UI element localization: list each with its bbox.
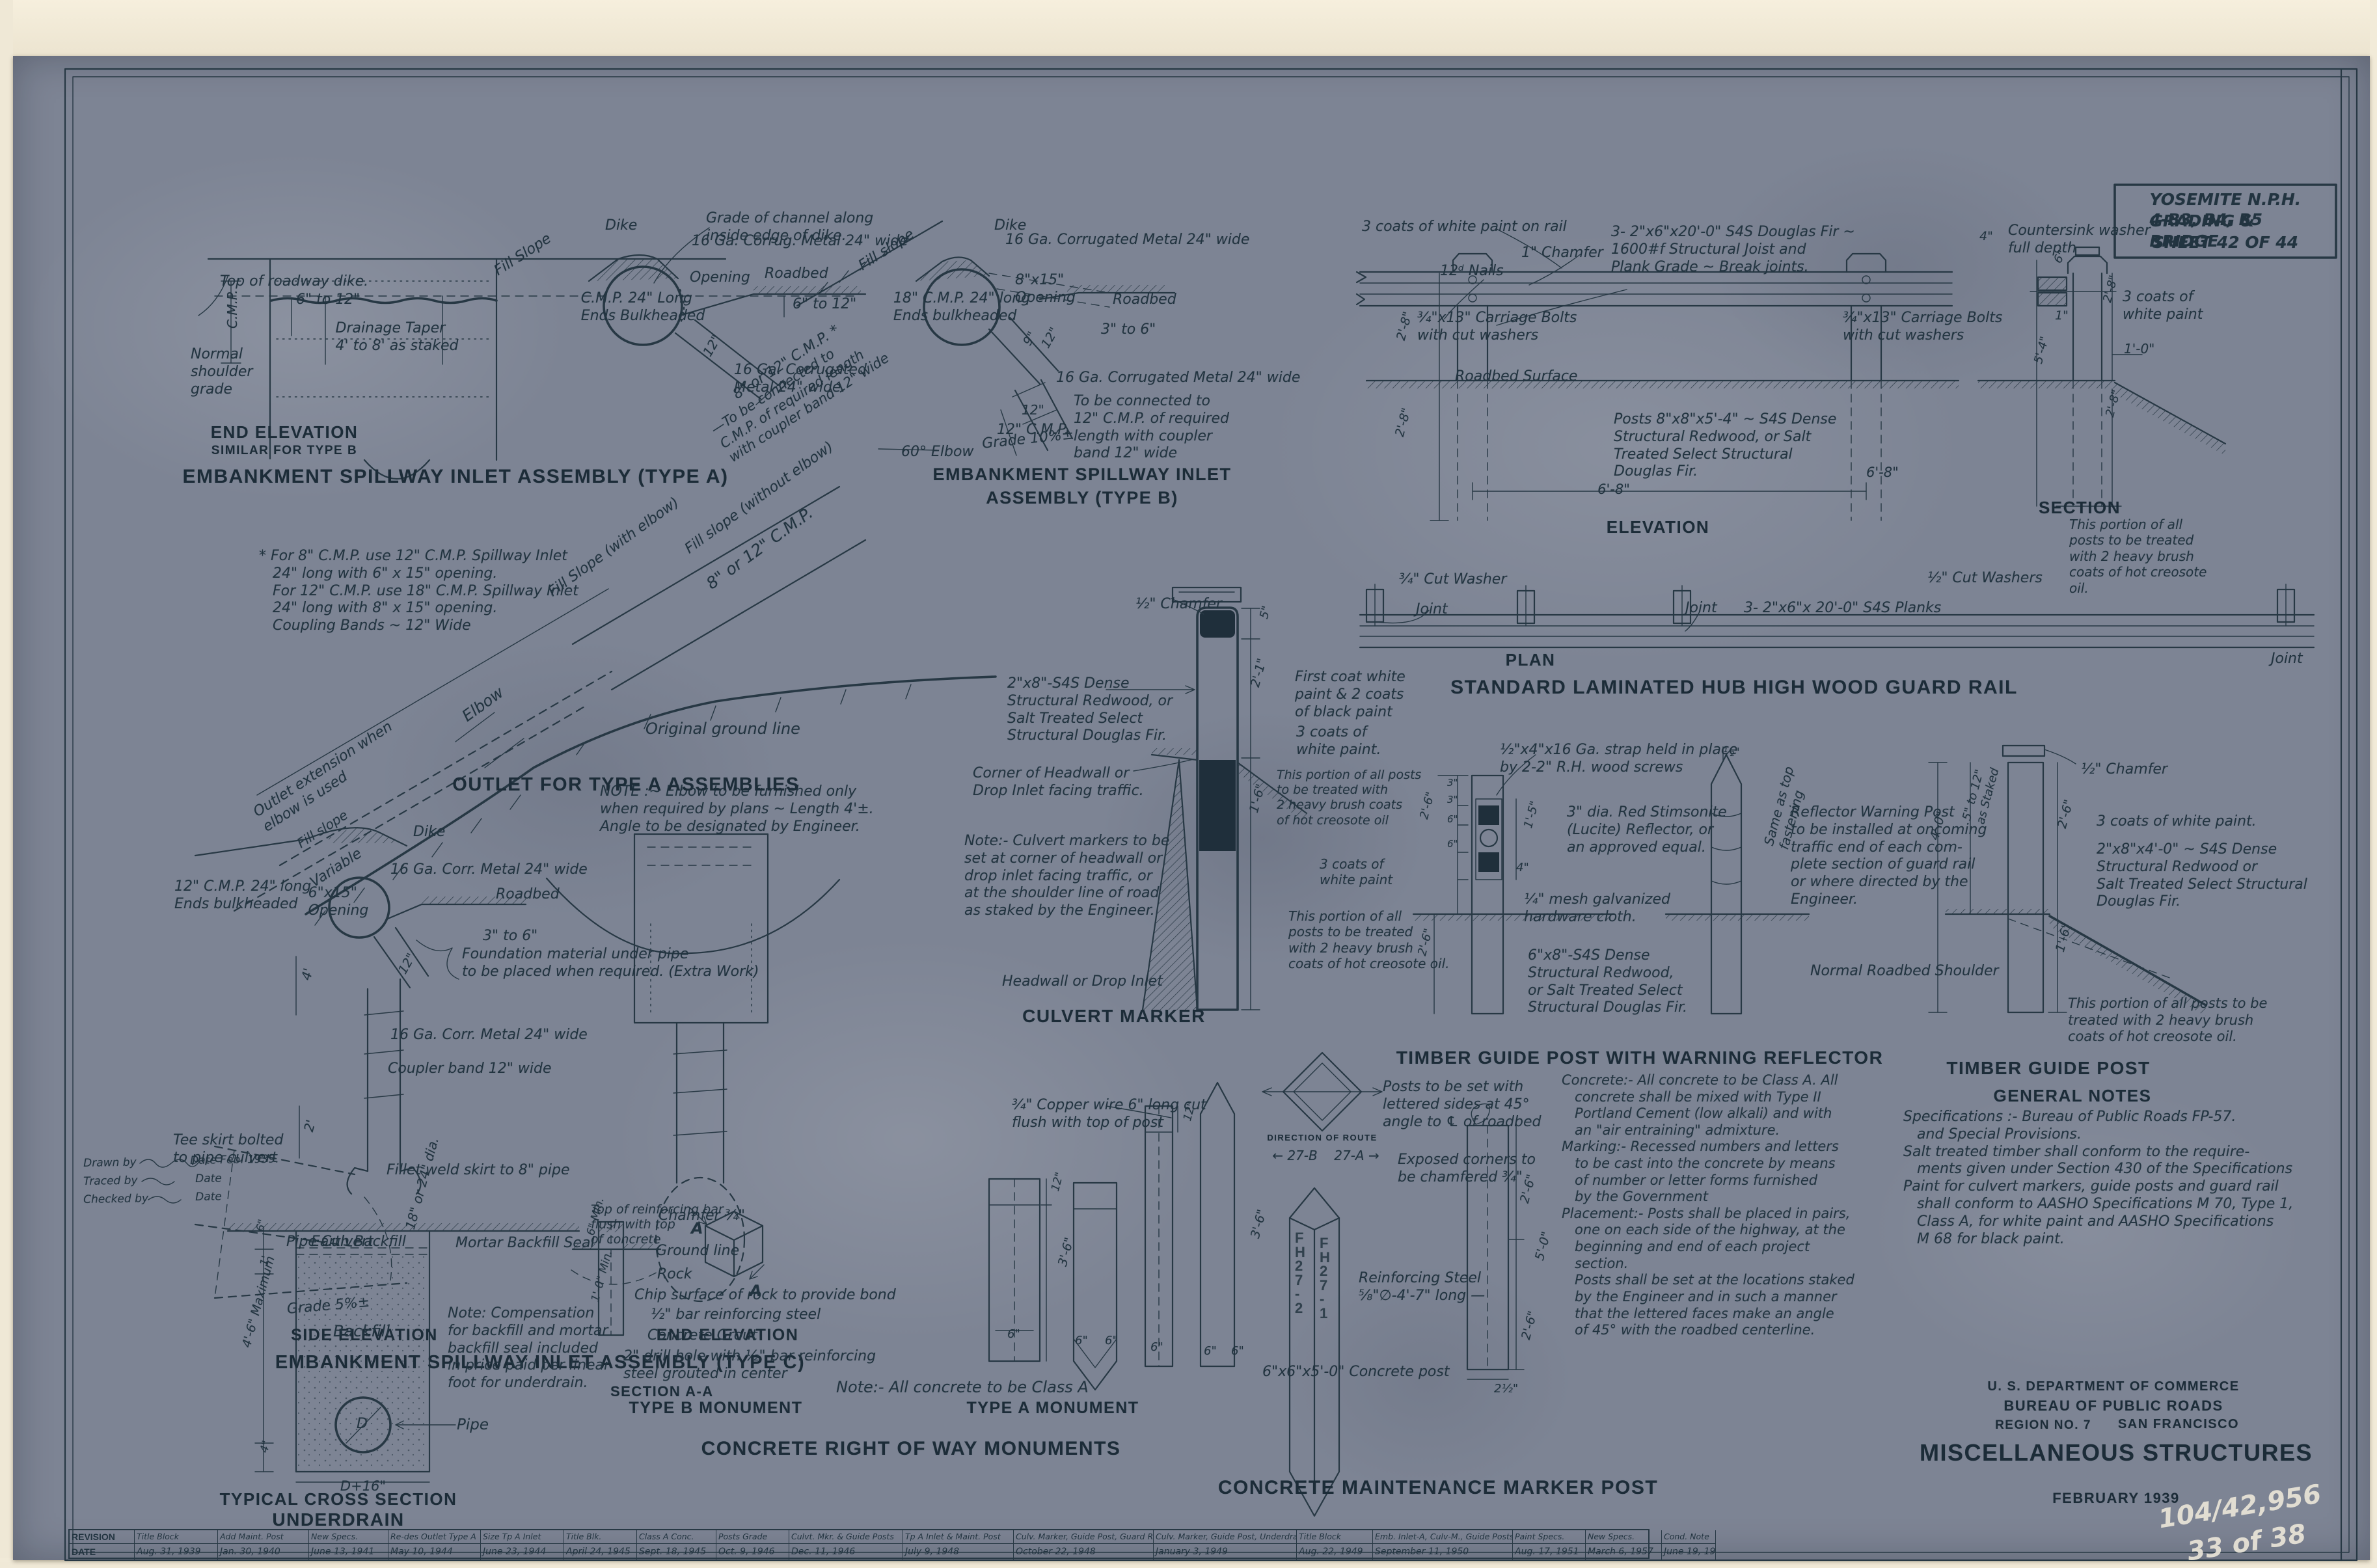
credits-label-0: Drawn by — [83, 1156, 137, 1170]
maint-marker-label-2: 3'-6" — [1248, 1208, 1270, 1240]
spillway-type-a-label-17: END ELEVATION — [211, 423, 359, 442]
date-entry-7: Oct. 9, 1946 — [716, 1544, 789, 1560]
general-notes-label-0: GENERAL NOTES — [1994, 1087, 2152, 1106]
guard-rail-label-11: 6'-8" — [1866, 465, 1899, 481]
row-monuments-label-20: TYPE A MONUMENT — [966, 1399, 1139, 1418]
date-entry-8: Dec. 11, 1946 — [789, 1544, 903, 1560]
guide-post-reflector-label-2: 3" — [1447, 794, 1458, 805]
date-entry-12: Aug. 22, 1949 — [1297, 1544, 1373, 1560]
guide-post-label-2: 2"x8"x4'-0" ~ S4S Dense Structural Redwo… — [2097, 841, 2307, 911]
spillway-type-b-label-8: 12" — [1039, 325, 1063, 351]
revision-entry-6: Class A Conc. — [637, 1530, 716, 1544]
maint-marker-label-20: CONCRETE MAINTENANCE MARKER POST — [1218, 1477, 1658, 1500]
row-monuments-label-19: TYPE B MONUMENT — [629, 1399, 803, 1418]
spillway-type-c-label-13: Fillet weld skirt to 8" pipe — [387, 1162, 570, 1180]
date-entry-11: January 3, 1949 — [1154, 1544, 1297, 1560]
culvert-marker-label-3: 3 coats of white paint. — [1296, 724, 1381, 759]
spillway-type-c-label-5: Roadbed — [496, 886, 560, 904]
outlet-type-a-label-5: Original ground line — [645, 720, 800, 738]
culvert-marker-label-1: 2"x8"-S4S Dense Structural Redwood, or S… — [1007, 675, 1173, 745]
underdrain-label-9: 4" — [258, 1439, 274, 1454]
revision-entry-1: Add Maint. Post — [218, 1530, 309, 1544]
row-monuments-label-17: 6" — [1075, 1334, 1088, 1348]
guard-rail-label-28: ½" Cut Washers — [1927, 570, 2043, 588]
culvert-marker-label-4: 5" — [1257, 604, 1274, 621]
date-entry-2: June 13, 1941 — [309, 1544, 388, 1560]
guard-rail-label-8: 2'-8" — [1392, 407, 1415, 439]
guide-post-label-7: This portion of all posts to be treated … — [2068, 995, 2267, 1046]
spillway-type-a-label-16: 12" — [700, 332, 724, 359]
guard-rail-label-17: 2'-8" — [2100, 274, 2121, 304]
spillway-type-c-label-4: 6"x15" Opening — [308, 885, 369, 920]
revision-entry-7: Posts Grade — [716, 1530, 789, 1544]
maint-marker-label-7: ← 27-B — [1272, 1148, 1318, 1163]
credits-label-3: Date — [195, 1172, 222, 1185]
spillway-type-c-label-15: 18" or 24" dia. — [402, 1135, 442, 1231]
date-entry-15: March 6, 1957 — [1586, 1544, 1662, 1560]
maint-marker-label-4: 6" — [1204, 1344, 1217, 1358]
spillway-type-a-label-5: Roadbed — [765, 265, 828, 283]
spillway-type-b-label-13: Grade 10%± — [981, 426, 1074, 453]
spillway-type-c-label-11: 2' — [301, 1118, 319, 1133]
guard-rail-label-3: 3- 2"x6"x20'-0" S4S Douglas Fir ~ 1600#f… — [1611, 224, 1855, 276]
spillway-type-b-label-6: 3" to 6" — [1101, 321, 1156, 339]
underdrain-label-7: Pipe — [457, 1416, 489, 1434]
maint-marker-label-14: 5'-0" — [1532, 1230, 1555, 1262]
maint-marker-label-0: ¾" Copper wire 6" long cut flush with to… — [1012, 1097, 1206, 1132]
general-notes-label-1: Specifications :- Bureau of Public Roads… — [1903, 1109, 2293, 1249]
maint-marker-label-19: Concrete:- All concrete to be Class A. A… — [1562, 1072, 1854, 1339]
maint-marker-label-15: 2'-6" — [1519, 1310, 1541, 1342]
culvert-marker-label-13: CULVERT MARKER — [1022, 1006, 1206, 1027]
row-monuments-label-8: Concrete Grout — [647, 1327, 757, 1345]
annotation-layer: YOSEMITE N.P.H. 4-B3, B4, B5GRADING & BR… — [0, 0, 2377, 1562]
guard-rail-label-7: Roadbed Surface — [1455, 368, 1577, 386]
date-entry-5: April 24, 1945 — [564, 1544, 637, 1560]
date-entry-0: Aug. 31, 1939 — [135, 1544, 218, 1560]
underdrain-label-12: UNDERDRAIN — [272, 1509, 404, 1530]
guide-post-label-0: ½" Chamfer — [2081, 761, 2167, 779]
revision-entry-13: Emb. Inlet-A, Culv-M., Guide Posts — [1373, 1530, 1513, 1544]
revision-header: REVISION — [70, 1530, 135, 1544]
underdrain-label-2: 4'-6" Maximum — [239, 1254, 278, 1349]
guard-rail-label-24: ¾" Cut Washer — [1399, 571, 1506, 589]
guard-rail-label-25: Joint — [1416, 601, 1448, 619]
spillway-type-a-label-19: EMBANKMENT SPILLWAY INLET ASSEMBLY (TYPE… — [182, 466, 728, 489]
guide-post-reflector-label-8: 4" — [1516, 861, 1529, 875]
spillway-type-a-label-2: Dike — [605, 217, 637, 235]
guard-rail-label-4: ¾"x13" Carriage Bolts with cut washers — [1417, 310, 1577, 345]
spillway-type-b-label-16: ASSEMBLY (TYPE B) — [986, 488, 1178, 508]
spillway-type-a-label-0: Top of roadway dike. — [220, 273, 368, 291]
date-entry-3: May 10, 1944 — [388, 1544, 481, 1560]
title-block-label-1: BUREAU OF PUBLIC ROADS — [2003, 1398, 2223, 1414]
revision-entry-16: Cond. Note — [1662, 1530, 1716, 1544]
date-entry-4: June 23, 1944 — [481, 1544, 564, 1560]
spillway-type-a-label-12: C.M.P. — [224, 290, 240, 329]
maint-marker-label-9: Posts to be set with lettered sides at 4… — [1383, 1079, 1541, 1131]
guide-post-reflector-label-9: 3" dia. Red Stimsonite (Lucite) Reflecto… — [1567, 804, 1727, 856]
spillway-type-b-label-9: 16 Ga. Corrugated Metal 24" wide — [1056, 370, 1300, 387]
date-entry-13: September 11, 1950 — [1373, 1544, 1513, 1560]
row-monuments-label-13: Note:- All concrete to be Class A — [836, 1378, 1089, 1397]
row-monuments-label-15: 3'-6" — [1055, 1236, 1078, 1268]
maint-marker-label-5: 6" — [1231, 1344, 1244, 1358]
guide-post-reflector-label-1: 3" — [1447, 777, 1458, 789]
guard-rail-label-18: 3 coats of white paint — [2123, 289, 2203, 324]
guide-post-label-8: TIMBER GUIDE POST — [1946, 1058, 2150, 1079]
credits-label-2: Traced by — [83, 1174, 138, 1189]
guard-rail-label-14: 4" — [1979, 229, 1993, 244]
date-entry-14: Aug. 17, 1951 — [1513, 1544, 1586, 1560]
revision-entry-3: Re-des Outlet Type A — [388, 1530, 481, 1544]
guard-rail-label-19: 1'-0" — [2124, 341, 2154, 357]
maint-marker-label-6: DIRECTION OF ROUTE — [1267, 1133, 1377, 1143]
maint-marker-label-8: 27-A → — [1334, 1148, 1379, 1163]
guard-rail-label-6: 2'-8" — [1394, 310, 1416, 342]
row-monuments-label-14: 12" — [1049, 1171, 1067, 1193]
title-block-label-4: MISCELLANEOUS STRUCTURES — [1920, 1439, 2313, 1466]
culvert-marker-label-8: This portion of all posts to be treated … — [1277, 768, 1421, 828]
row-monuments-label-3: Ground line — [656, 1243, 739, 1260]
corner-box-label-2: SHEET 42 OF 44 — [2153, 233, 2298, 253]
guide-post-reflector-label-0: ½"x4"x16 Ga. strap held in place by 2-2"… — [1500, 742, 1737, 777]
maint-marker-label-18: F H 2 7 - 1 — [1320, 1236, 1330, 1320]
guard-rail-label-13: Countersink washer full depth — [2008, 223, 2151, 258]
guard-rail-label-16: 1" — [2055, 308, 2069, 323]
maint-marker-label-16: 2½" — [1494, 1382, 1518, 1396]
maint-marker-label-3: 6" — [1150, 1340, 1163, 1355]
spillway-type-b-label-1: 16 Ga. Corrugated Metal 24" wide — [1005, 232, 1249, 249]
guide-post-reflector-label-11: 6"x8"-S4S Dense Structural Redwood, or S… — [1528, 947, 1687, 1017]
guide-post-reflector-label-4: 6" — [1447, 838, 1458, 850]
row-monuments-label-18: 6" — [1105, 1334, 1118, 1348]
guide-post-reflector-label-10: ¼" mesh galvanized hardware cloth. — [1524, 891, 1670, 926]
culvert-marker-label-12: Headwall or Drop Inlet — [1002, 973, 1163, 991]
row-monuments-label-12: A — [750, 1282, 762, 1301]
spillway-type-b-label-7: 9" — [1020, 329, 1040, 349]
revision-entry-15: New Specs. — [1586, 1530, 1662, 1544]
revision-entry-5: Title Blk. — [564, 1530, 637, 1544]
revision-entry-9: Tp A Inlet & Maint. Post — [903, 1530, 1014, 1544]
guard-rail-label-21: 2'-8" — [2103, 388, 2124, 419]
culvert-marker-label-6: 1'-6" — [1247, 783, 1269, 815]
spillway-type-b-label-11: 12" — [1022, 402, 1044, 418]
guide-post-label-6: 1'-6" — [2053, 922, 2075, 954]
guard-rail-label-31: STANDARD LAMINATED HUB HIGH WOOD GUARD R… — [1450, 677, 2018, 699]
title-block-label-2: REGION NO. 7 — [1995, 1418, 2091, 1433]
guide-post-reflector-label-12: ½" — [1723, 746, 1740, 760]
revision-entry-10: Culv. Marker, Guide Post, Guard Rail — [1014, 1530, 1154, 1544]
maint-marker-label-17: F H 2 7 - 2 — [1295, 1231, 1305, 1315]
date-entry-1: Jan. 30, 1940 — [218, 1544, 309, 1560]
underdrain-label-5: Backfill — [333, 1322, 390, 1341]
guard-rail-label-0: 3 coats of white paint on rail — [1362, 219, 1567, 236]
outlet-type-a-label-4: Elbow — [459, 683, 508, 726]
underdrain-label-0: 6" — [254, 1218, 270, 1233]
revision-row: REVISIONTitle BlockAdd Maint. PostNew Sp… — [70, 1530, 1716, 1544]
title-block-label-0: U. S. DEPARTMENT OF COMMERCE — [1987, 1379, 2239, 1394]
guide-post-reflector-label-14: Reflector Warning Post to be installed a… — [1791, 804, 1987, 909]
guide-post-label-5: 2'-6" — [2055, 798, 2077, 830]
guide-post-reflector-label-16: TIMBER GUIDE POST WITH WARNING REFLECTOR — [1396, 1048, 1884, 1068]
culvert-marker-label-7: Corner of Headwall or Drop Inlet facing … — [973, 765, 1144, 800]
guard-rail-label-1: 1" Chamfer — [1521, 245, 1603, 262]
row-monuments-label-5: Chip surface of rock to provide bond — [634, 1287, 896, 1304]
credits-label-4: Checked by — [83, 1192, 148, 1206]
spillway-type-c-label-9: 16 Ga. Corr. Metal 24" wide — [390, 1027, 588, 1044]
row-monuments-label-21: CONCRETE RIGHT OF WAY MONUMENTS — [701, 1438, 1121, 1461]
credits-label-1: Date Feb. 1939. — [190, 1153, 279, 1168]
spillway-type-c-label-2: 16 Ga. Corr. Metal 24" wide — [390, 861, 588, 879]
spillway-type-a-label-4: Opening — [690, 269, 750, 287]
guide-post-reflector-label-7: 1'-5" — [1521, 800, 1542, 830]
spillway-type-a-label-6: C.M.P. 24" Long Ends Bulkheaded — [581, 290, 705, 325]
guard-rail-label-10: 6'-8" — [1597, 481, 1630, 498]
date-header: DATE — [70, 1544, 135, 1560]
revision-entry-11: Culv. Marker, Guide Post, Underdrain — [1154, 1530, 1297, 1544]
underdrain-label-8: D — [357, 1416, 368, 1433]
revision-entry-8: Culvt. Mkr. & Guide Posts — [789, 1530, 903, 1544]
spillway-type-c-label-0: Dike — [413, 824, 445, 841]
blueprint-sheet: { "sheet": { "ink_color": "#273844", "pa… — [0, 0, 2377, 1562]
spillway-type-b-label-5: Roadbed — [1113, 291, 1176, 309]
culvert-marker-label-9: Note:- Culvert markers to be set at corn… — [964, 833, 1169, 920]
spillway-type-b-label-14: 60° Elbow — [901, 444, 973, 461]
guard-rail-label-27: 3- 2"x6"x 20'-0" S4S Planks — [1744, 600, 1941, 617]
row-monuments-label-16: 6" — [1007, 1327, 1020, 1342]
guard-rail-label-9: Posts 8"x8"x5'-4" ~ S4S Dense Structural… — [1614, 411, 1836, 481]
guard-rail-label-20: 5'-4" — [2031, 335, 2052, 366]
guard-rail-label-22: SECTION — [2039, 498, 2121, 518]
guide-post-label-4: 5" to 12" as Staked — [1960, 763, 2002, 826]
spillway-type-c-label-16: Grade 5%± — [286, 1294, 370, 1319]
guard-rail-label-12: ELEVATION — [1607, 518, 1709, 537]
row-monuments-label-7: ½" bar reinforcing steel — [651, 1306, 821, 1324]
underdrain-label-6: Note: Compensation for backfill and mort… — [448, 1305, 610, 1392]
culvert-marker-label-2: First coat white paint & 2 coats of blac… — [1295, 669, 1406, 721]
spillway-type-a-label-8: 6" to 12" — [793, 296, 856, 314]
spillway-type-a-label-15: 16 Ga. Corrugated Metal 24" wide. — [734, 362, 867, 397]
culvert-marker-label-5: 2'-1" — [1248, 657, 1270, 689]
spillway-type-b-label-10: To be connected to 12" C.M.P. of require… — [1074, 393, 1229, 463]
revision-entry-14: Paint Specs. — [1513, 1530, 1586, 1544]
guard-rail-label-29: Joint — [2271, 651, 2303, 668]
spillway-type-c-label-8: 12" — [396, 951, 420, 977]
outlet-type-a-label-10: OUTLET FOR TYPE A ASSEMBLIES — [452, 774, 799, 796]
culvert-marker-label-0: ½" Chamfer — [1135, 596, 1222, 614]
maint-marker-label-10: Exposed corners to be chamfered ¾" — [1398, 1152, 1536, 1187]
title-block-label-3: SAN FRANCISCO — [2118, 1417, 2239, 1432]
date-row: DATEAug. 31, 1939Jan. 30, 1940June 13, 1… — [70, 1544, 1716, 1560]
date-entry-9: July 9, 1948 — [903, 1544, 1014, 1560]
underdrain-label-11: TYPICAL CROSS SECTION — [220, 1490, 457, 1509]
row-monuments-label-6: 1'-0" Min. — [589, 1249, 616, 1304]
row-monuments-label-10: SECTION A-A — [610, 1383, 714, 1399]
date-entry-6: Sept. 18, 1945 — [637, 1544, 716, 1560]
underdrain-label-4: Mortar Backfill Seal — [455, 1235, 595, 1252]
revision-entry-4: Size Tp A Inlet — [481, 1530, 564, 1544]
spillway-type-b-label-15: EMBANKMENT SPILLWAY INLET — [932, 465, 1231, 485]
spillway-type-c-label-10: Coupler band 12" wide — [388, 1061, 551, 1078]
revision-entry-0: Title Block — [135, 1530, 218, 1544]
guard-rail-label-5: ¾"x13" Carriage Bolts with cut washers — [1843, 310, 2002, 345]
spillway-type-a-label-11: Normal shoulder grade — [191, 346, 252, 398]
guide-post-reflector-label-3: 6" — [1447, 813, 1458, 825]
row-monuments-label-11: A — [691, 1219, 703, 1238]
spillway-type-c-label-6: 3" to 6" — [483, 928, 537, 945]
maint-marker-label-12: 6"x6"x5'-0" Concrete post — [1262, 1364, 1449, 1381]
revision-entry-12: Title Block — [1297, 1530, 1373, 1544]
guard-rail-label-2: 12ᵈ Nails — [1440, 263, 1504, 280]
spillway-type-a-label-18: SIMILAR FOR TYPE B — [211, 444, 357, 458]
spillway-type-b-label-4: 18" C.M.P. 24" long Ends bulkheaded — [893, 290, 1030, 325]
guard-rail-label-26: Joint — [1685, 600, 1717, 617]
maint-marker-label-11: Reinforcing Steel ⅝"∅-4'-7" long — — [1359, 1270, 1485, 1305]
spillway-type-c-label-7: 4' — [298, 966, 316, 982]
revision-entry-2: New Specs. — [309, 1530, 388, 1544]
outlet-type-a-label-0: * For 8" C.M.P. use 12" C.M.P. Spillway … — [259, 548, 578, 635]
guide-post-reflector-label-15: Normal Roadbed Shoulder — [1810, 963, 1999, 980]
credits-label-5: Date — [195, 1190, 222, 1204]
spillway-type-c-label-3: 12" C.M.P. 24" long Ends bulkheaded — [174, 878, 311, 913]
spillway-type-a-label-10: Drainage Taper 4' to 8' as staked — [336, 320, 459, 355]
guard-rail-label-30: PLAN — [1506, 651, 1556, 670]
date-entry-10: October 22, 1948 — [1014, 1544, 1154, 1560]
culvert-marker-label-10: 3 coats of white paint — [1320, 856, 1392, 888]
underdrain-label-3: Earth Backfill — [311, 1234, 406, 1251]
date-entry-16: June 19, 1957 — [1662, 1544, 1716, 1560]
guard-rail-label-23: This portion of all posts to be treated … — [2069, 517, 2207, 596]
outlet-type-a-label-9: Foundation material under pipe to be pla… — [462, 946, 759, 981]
row-monuments-label-4: Rock — [657, 1266, 692, 1284]
revision-table: REVISIONTitle BlockAdd Maint. PostNew Sp… — [68, 1529, 1650, 1559]
guide-post-label-1: 3 coats of white paint. — [2097, 813, 2257, 831]
spillway-type-a-label-9: Fill Slope — [491, 230, 555, 280]
spillway-type-a-label-7: 6" to 12" — [296, 291, 360, 309]
